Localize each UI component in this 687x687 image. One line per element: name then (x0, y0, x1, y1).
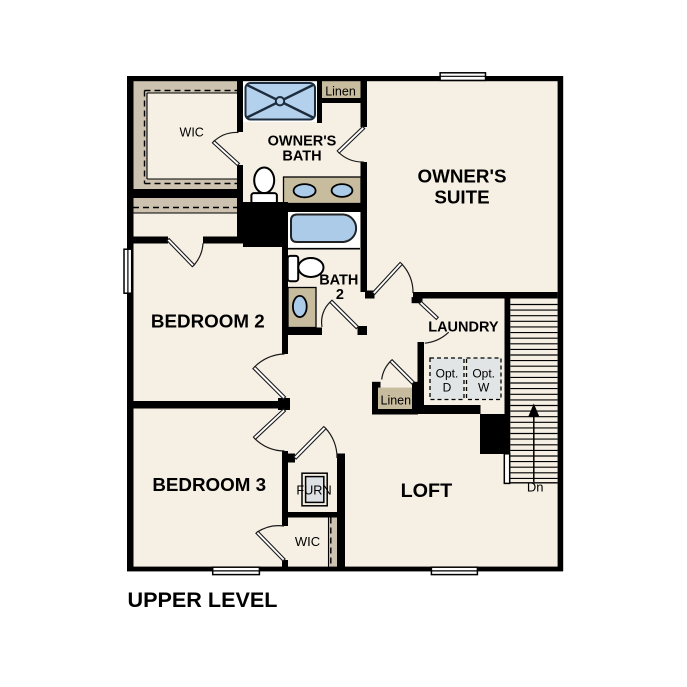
svg-text:WIC: WIC (180, 125, 204, 139)
svg-text:Linen: Linen (325, 85, 356, 99)
svg-text:OWNER'S: OWNER'S (418, 166, 507, 187)
svg-text:BATH: BATH (282, 149, 321, 165)
svg-text:FURN: FURN (296, 483, 331, 497)
svg-text:Linen: Linen (381, 394, 412, 408)
svg-text:LOFT: LOFT (401, 480, 453, 502)
svg-text:BEDROOM 2: BEDROOM 2 (151, 311, 265, 332)
svg-text:LAUNDRY: LAUNDRY (428, 320, 499, 336)
svg-text:BEDROOM 3: BEDROOM 3 (152, 474, 266, 495)
svg-text:2: 2 (336, 287, 344, 303)
svg-text:UPPER LEVEL: UPPER LEVEL (128, 587, 278, 612)
svg-text:WIC: WIC (295, 534, 320, 549)
svg-text:OWNER'S: OWNER'S (268, 134, 337, 150)
svg-text:Opt.: Opt. (472, 367, 495, 381)
svg-text:BATH: BATH (319, 272, 358, 288)
svg-text:W: W (478, 381, 490, 395)
svg-text:SUITE: SUITE (434, 187, 489, 208)
svg-text:Opt.: Opt. (436, 367, 459, 381)
svg-text:D: D (443, 381, 452, 395)
svg-text:Dn: Dn (527, 479, 544, 494)
